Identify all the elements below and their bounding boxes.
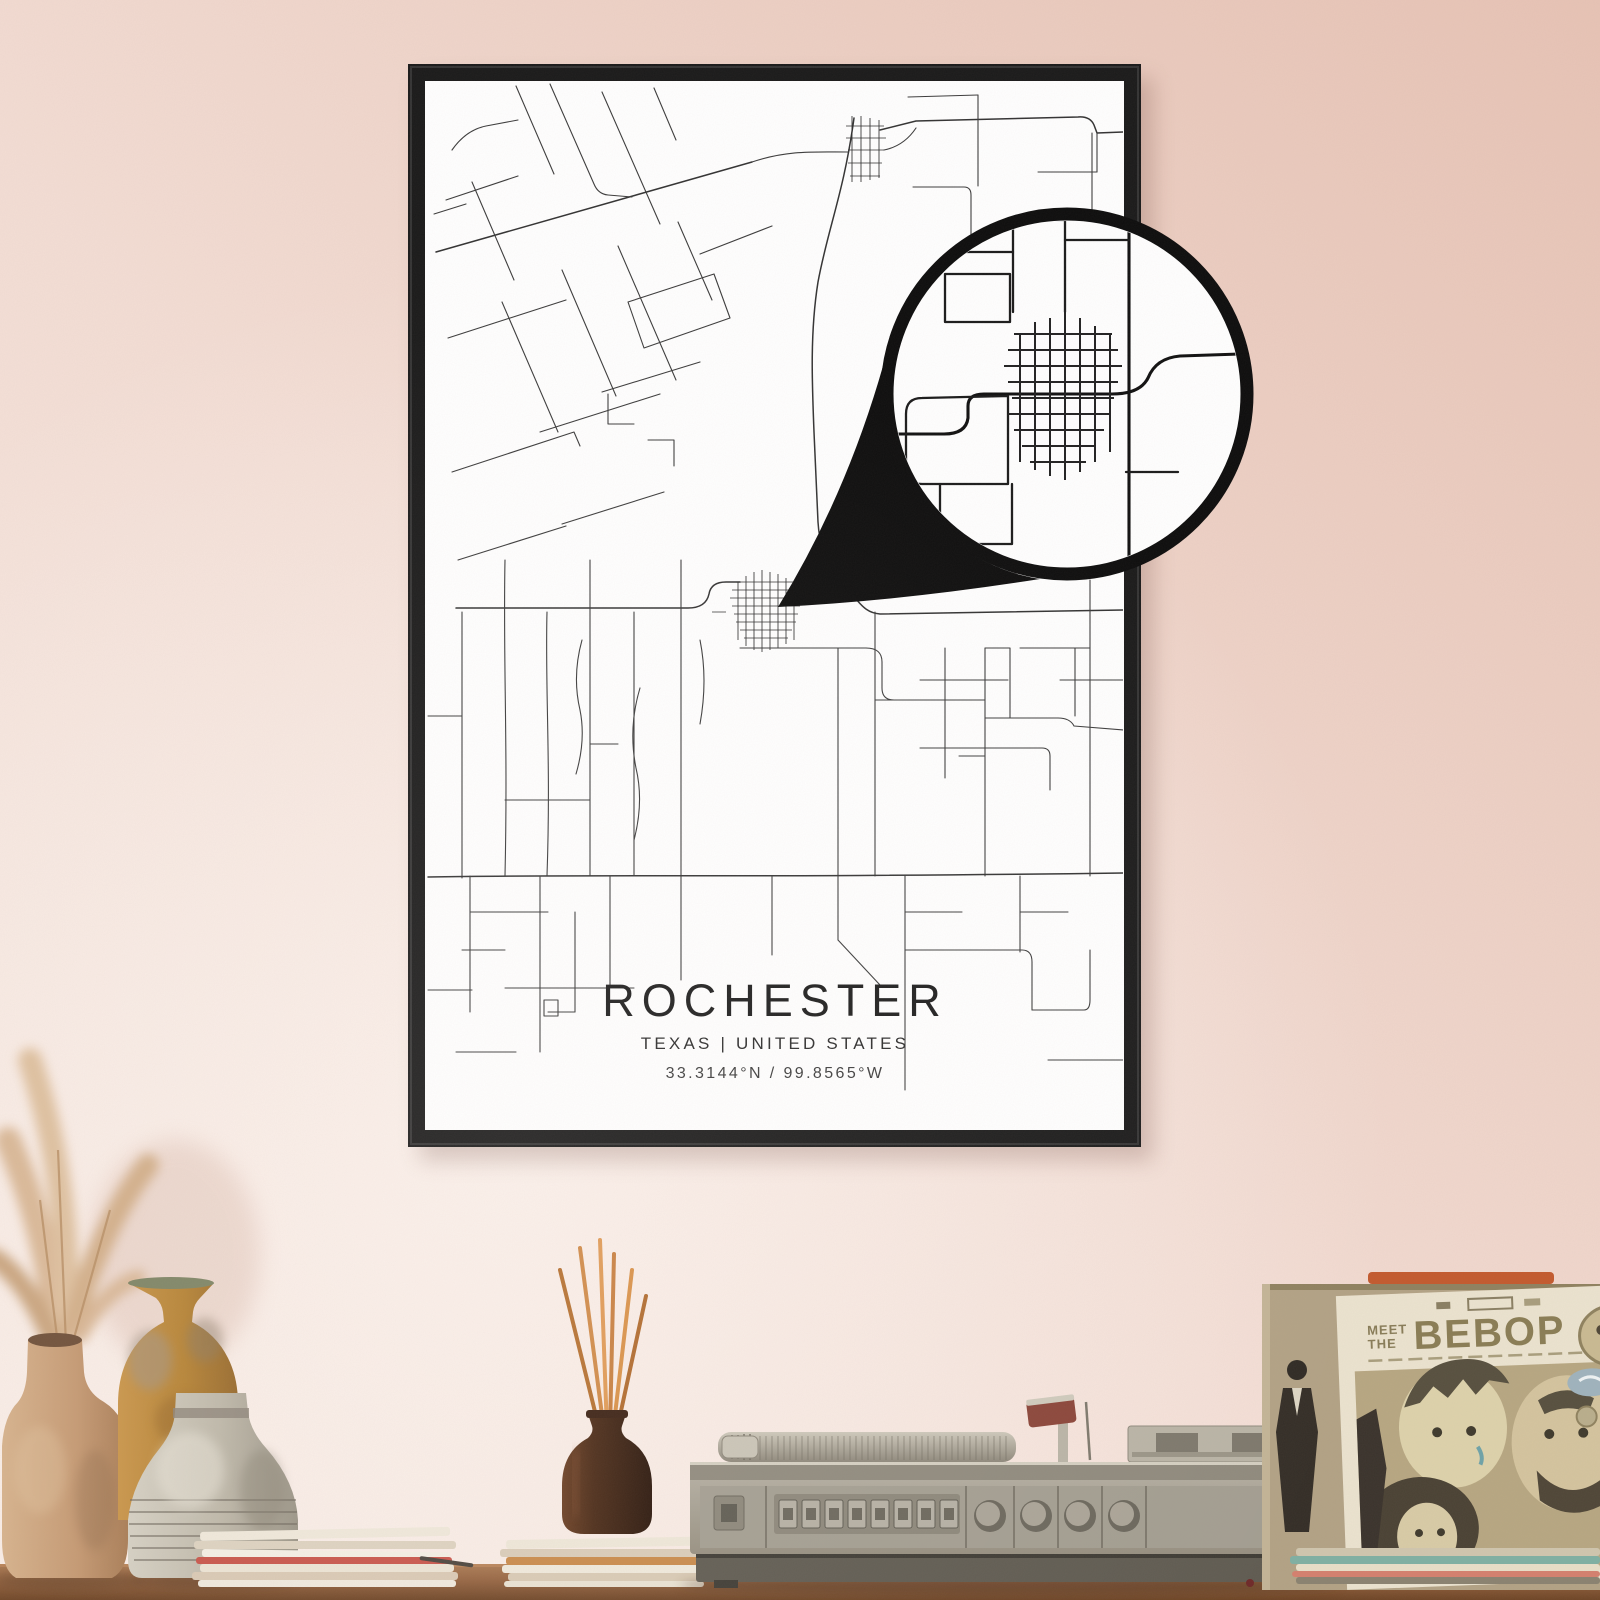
room-scene: ROCHESTER TEXAS | UNITED STATES 33.3144°… — [0, 0, 1600, 1600]
vignette-overlay — [0, 0, 1600, 1600]
scene-canvas: ROCHESTER TEXAS | UNITED STATES 33.3144°… — [0, 0, 1600, 1600]
